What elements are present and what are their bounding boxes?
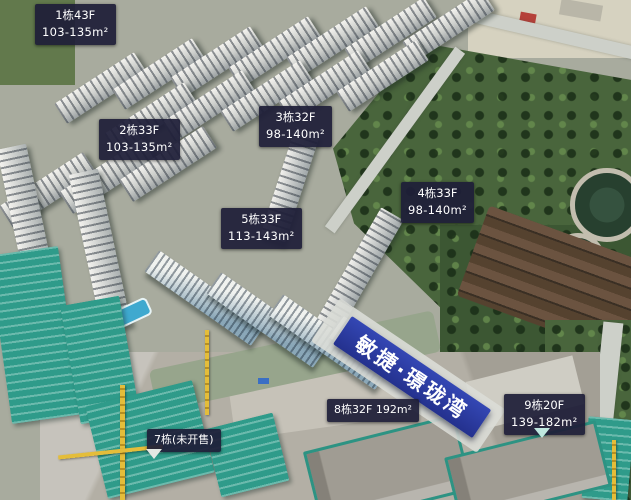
label-line2: 98-140m² (266, 126, 325, 143)
label-pointer-9 (534, 428, 550, 438)
label-line2: 98-140m² (408, 202, 467, 219)
label-line1: 1栋43F (42, 7, 109, 24)
building-label-8[interactable]: 8栋32F 192m² (327, 399, 419, 422)
label-line1: 2栋33F (106, 122, 173, 139)
label-line2: 113-143m² (228, 228, 295, 245)
label-line1: 3栋32F (266, 109, 325, 126)
tower-crane (205, 330, 209, 415)
label-line1: 4栋33F (408, 185, 467, 202)
label-line1: 7栋(未开售) (154, 432, 214, 449)
aerial-photo: 敏捷·璟珑湾 1栋43F 103-135m² 2栋33F 103-135m² 3… (0, 0, 631, 500)
label-line1: 5栋33F (228, 211, 295, 228)
blue-tarp (258, 378, 269, 384)
label-line1: 8栋32F 192m² (334, 402, 412, 419)
building-label-1[interactable]: 1栋43F 103-135m² (35, 4, 116, 45)
label-pointer-7 (146, 449, 162, 459)
tower-crane (120, 385, 125, 500)
label-line2: 103-135m² (106, 139, 173, 156)
label-line2: 103-135m² (42, 24, 109, 41)
label-line1: 9栋20F (511, 397, 578, 414)
building-label-5[interactable]: 5栋33F 113-143m² (221, 208, 302, 249)
tower-crane (612, 440, 616, 500)
building-label-4[interactable]: 4栋33F 98-140m² (401, 182, 474, 223)
building-label-2[interactable]: 2栋33F 103-135m² (99, 119, 180, 160)
building-label-3[interactable]: 3栋32F 98-140m² (259, 106, 332, 147)
